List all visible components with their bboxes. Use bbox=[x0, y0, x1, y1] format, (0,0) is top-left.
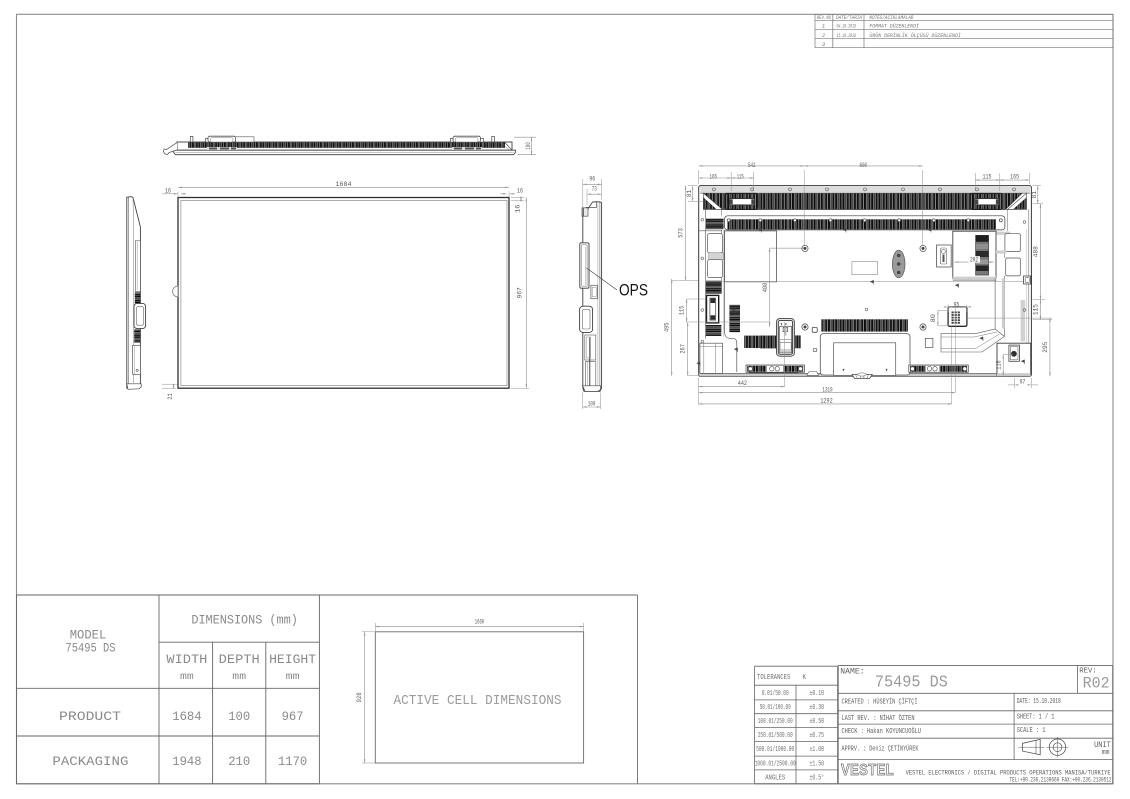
svg-text:100: 100 bbox=[525, 142, 533, 149]
svg-text:81: 81 bbox=[1031, 191, 1039, 198]
svg-text:115: 115 bbox=[983, 174, 992, 182]
svg-text:TEL:+90.236.2130660 FAX:+90.23: TEL:+90.236.2130660 FAX:+90.236.2130512 bbox=[1010, 777, 1112, 784]
svg-text:R02: R02 bbox=[1083, 675, 1110, 693]
svg-text:81: 81 bbox=[686, 190, 694, 197]
svg-text:CHECK : Hakan KOYUNCUOĞLU: CHECK : Hakan KOYUNCUOĞLU bbox=[842, 726, 922, 736]
svg-text:DEPTH: DEPTH bbox=[219, 653, 260, 667]
svg-text:ÜRÜN DERİNLİK ÖLÇÜSÜ DÜZENLEND: ÜRÜN DERİNLİK ÖLÇÜSÜ DÜZENLENDİ bbox=[869, 32, 961, 39]
svg-text:95: 95 bbox=[954, 301, 960, 309]
svg-text:21: 21 bbox=[167, 393, 175, 399]
svg-text:DATE: 15.10.2018: DATE: 15.10.2018 bbox=[1017, 698, 1061, 706]
svg-text:NAME:: NAME: bbox=[840, 669, 864, 677]
svg-text:16: 16 bbox=[165, 187, 171, 195]
svg-text:DIMENSIONS (mm): DIMENSIONS (mm) bbox=[191, 614, 298, 628]
svg-text:488: 488 bbox=[1032, 246, 1040, 257]
svg-text:1310: 1310 bbox=[822, 386, 832, 394]
svg-text:115: 115 bbox=[1032, 304, 1040, 315]
svg-text:100: 100 bbox=[588, 400, 595, 408]
svg-text:FORMAT DÜZENLENDİ: FORMAT DÜZENLENDİ bbox=[869, 23, 919, 30]
svg-text:967: 967 bbox=[282, 710, 304, 724]
svg-text:542: 542 bbox=[748, 162, 756, 170]
svg-text:967: 967 bbox=[517, 287, 525, 298]
svg-text:267: 267 bbox=[680, 344, 688, 354]
svg-text:116: 116 bbox=[996, 360, 1004, 369]
svg-text:75495 DS: 75495 DS bbox=[66, 642, 116, 656]
svg-text:1292: 1292 bbox=[820, 398, 832, 406]
svg-text:±0.50: ±0.50 bbox=[810, 718, 825, 726]
svg-text:±1.00: ±1.00 bbox=[810, 746, 825, 754]
svg-text:mm: mm bbox=[180, 672, 194, 683]
svg-text:VESTEL: VESTEL bbox=[841, 762, 894, 779]
svg-text:LAST REV. : NİHAT ÖZTEN: LAST REV. : NİHAT ÖZTEN bbox=[842, 714, 915, 723]
svg-text:928: 928 bbox=[356, 692, 364, 702]
svg-text:1000.01/2500.00: 1000.01/2500.00 bbox=[755, 760, 796, 768]
svg-text:3: 3 bbox=[822, 41, 826, 48]
svg-text:15.10.2018: 15.10.2018 bbox=[837, 32, 857, 39]
svg-text:VESTEL ELECTRONICS / DIGITAL P: VESTEL ELECTRONICS / DIGITAL PRODUCTS OP… bbox=[906, 770, 1111, 777]
svg-text:165: 165 bbox=[710, 174, 718, 182]
svg-text:±0.5°: ±0.5° bbox=[810, 773, 825, 782]
svg-text:400: 400 bbox=[762, 283, 770, 293]
svg-text:SCALE : 1: SCALE : 1 bbox=[1017, 727, 1046, 735]
svg-text:87: 87 bbox=[1020, 378, 1026, 386]
svg-text:±1.50: ±1.50 bbox=[810, 760, 825, 768]
svg-text:MODEL: MODEL bbox=[70, 628, 107, 642]
svg-text:1684: 1684 bbox=[172, 710, 201, 724]
svg-text:115: 115 bbox=[679, 306, 687, 316]
svg-text:ANGLES: ANGLES bbox=[765, 774, 785, 782]
svg-text:ACTIVE CELL DIMENSIONS: ACTIVE CELL DIMENSIONS bbox=[394, 694, 562, 709]
svg-text:SHEET: 1 / 1: SHEET: 1 / 1 bbox=[1017, 713, 1055, 721]
svg-text:165: 165 bbox=[1010, 174, 1019, 182]
svg-text:2: 2 bbox=[822, 32, 826, 39]
svg-text:210: 210 bbox=[228, 755, 250, 769]
svg-text:HEIGHT: HEIGHT bbox=[269, 653, 317, 667]
svg-text:PACKAGING: PACKAGING bbox=[52, 755, 128, 769]
svg-text:50.01/100.00: 50.01/100.00 bbox=[760, 704, 791, 712]
svg-text:600: 600 bbox=[860, 162, 868, 170]
svg-text:TOLERANCES: TOLERANCES bbox=[757, 674, 790, 682]
svg-text:250.01/500.00: 250.01/500.00 bbox=[758, 732, 793, 740]
svg-text:100.01/250.00: 100.01/250.00 bbox=[758, 718, 793, 726]
svg-text:73: 73 bbox=[592, 186, 597, 194]
svg-text:1684: 1684 bbox=[336, 181, 352, 189]
svg-text:±0.75: ±0.75 bbox=[810, 732, 825, 740]
svg-text:16: 16 bbox=[515, 205, 523, 214]
svg-text:1170: 1170 bbox=[278, 755, 307, 769]
svg-text:0.01/50.00: 0.01/50.00 bbox=[762, 690, 789, 698]
svg-text:202: 202 bbox=[970, 257, 978, 265]
svg-text:1948: 1948 bbox=[172, 755, 201, 769]
svg-text:WIDTH: WIDTH bbox=[166, 653, 207, 667]
svg-text:16: 16 bbox=[517, 187, 523, 195]
svg-text:100: 100 bbox=[228, 710, 250, 724]
svg-text:DATE/TARIH: DATE/TARIH bbox=[836, 15, 863, 21]
svg-text:1: 1 bbox=[822, 23, 825, 30]
svg-text:573: 573 bbox=[678, 228, 686, 238]
svg-text:500.01/1000.00: 500.01/1000.00 bbox=[756, 746, 794, 754]
svg-text:04.10.2018: 04.10.2018 bbox=[837, 23, 857, 30]
svg-text:mm: mm bbox=[232, 672, 246, 683]
svg-text:±0.30: ±0.30 bbox=[810, 704, 825, 712]
svg-text:NOTES/ACIKLAMALAR: NOTES/ACIKLAMALAR bbox=[869, 15, 914, 21]
svg-text:APPRV. : Deniz ÇETİNYÜREK: APPRV. : Deniz ÇETİNYÜREK bbox=[842, 745, 919, 754]
svg-text:115: 115 bbox=[737, 174, 744, 182]
svg-text:1660: 1660 bbox=[475, 618, 484, 626]
svg-text:442: 442 bbox=[738, 380, 747, 388]
svg-text:80: 80 bbox=[930, 314, 938, 322]
svg-text:mm: mm bbox=[1102, 749, 1110, 757]
svg-text:295: 295 bbox=[1042, 342, 1050, 353]
svg-text:495: 495 bbox=[663, 323, 671, 333]
svg-text:REV.NO: REV.NO bbox=[817, 15, 831, 21]
svg-text:OPS: OPS bbox=[619, 282, 648, 300]
svg-text:CREATED : HÜSEYİN ÇİFTÇİ: CREATED : HÜSEYİN ÇİFTÇİ bbox=[842, 697, 918, 706]
svg-text:96: 96 bbox=[589, 175, 595, 183]
svg-text:±0.10: ±0.10 bbox=[810, 690, 825, 698]
svg-text:mm: mm bbox=[286, 672, 300, 683]
svg-text:75495 DS: 75495 DS bbox=[875, 674, 948, 693]
svg-text:PRODUCT: PRODUCT bbox=[59, 710, 122, 724]
